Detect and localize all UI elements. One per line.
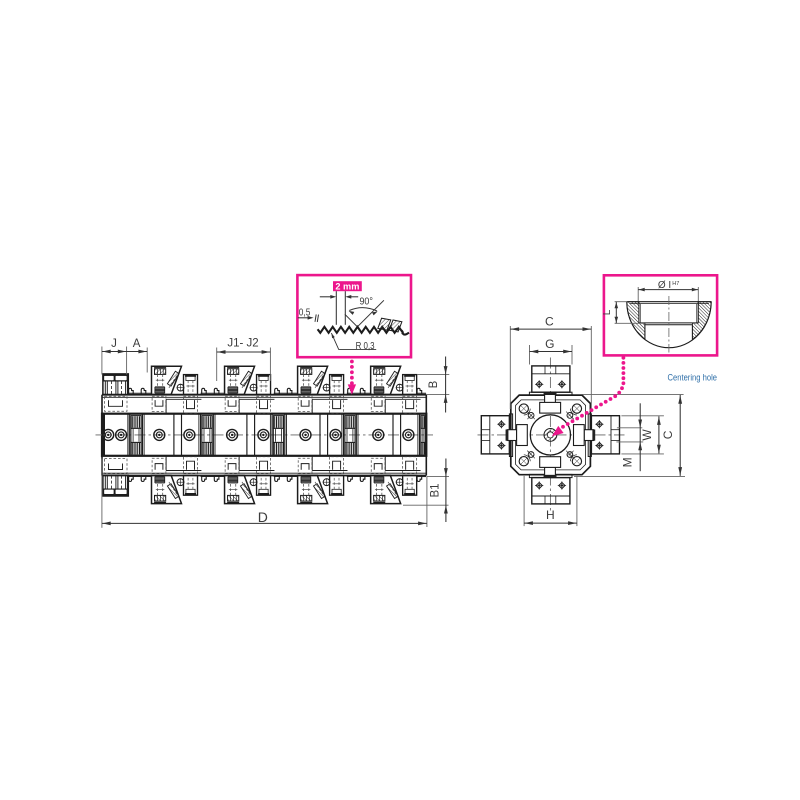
svg-text:R 0,3: R 0,3: [356, 340, 375, 352]
svg-text:Centering hole: Centering hole: [668, 372, 718, 383]
svg-text:L: L: [602, 309, 613, 315]
svg-text:D: D: [258, 509, 268, 525]
svg-text:H: H: [546, 508, 555, 522]
svg-text:2 mm: 2 mm: [335, 282, 359, 293]
svg-text:M: M: [621, 457, 635, 467]
svg-text:C: C: [545, 315, 554, 329]
svg-text:H7: H7: [672, 281, 679, 287]
svg-text:J: J: [111, 338, 117, 350]
svg-text:A: A: [133, 338, 141, 350]
svg-text:W: W: [640, 429, 654, 441]
svg-text:G: G: [545, 337, 554, 351]
svg-text:B: B: [428, 380, 440, 388]
svg-text:B1: B1: [430, 483, 442, 497]
svg-text:J1- J2: J1- J2: [227, 337, 258, 349]
svg-text:C: C: [661, 430, 675, 439]
svg-text:90°: 90°: [359, 297, 373, 308]
